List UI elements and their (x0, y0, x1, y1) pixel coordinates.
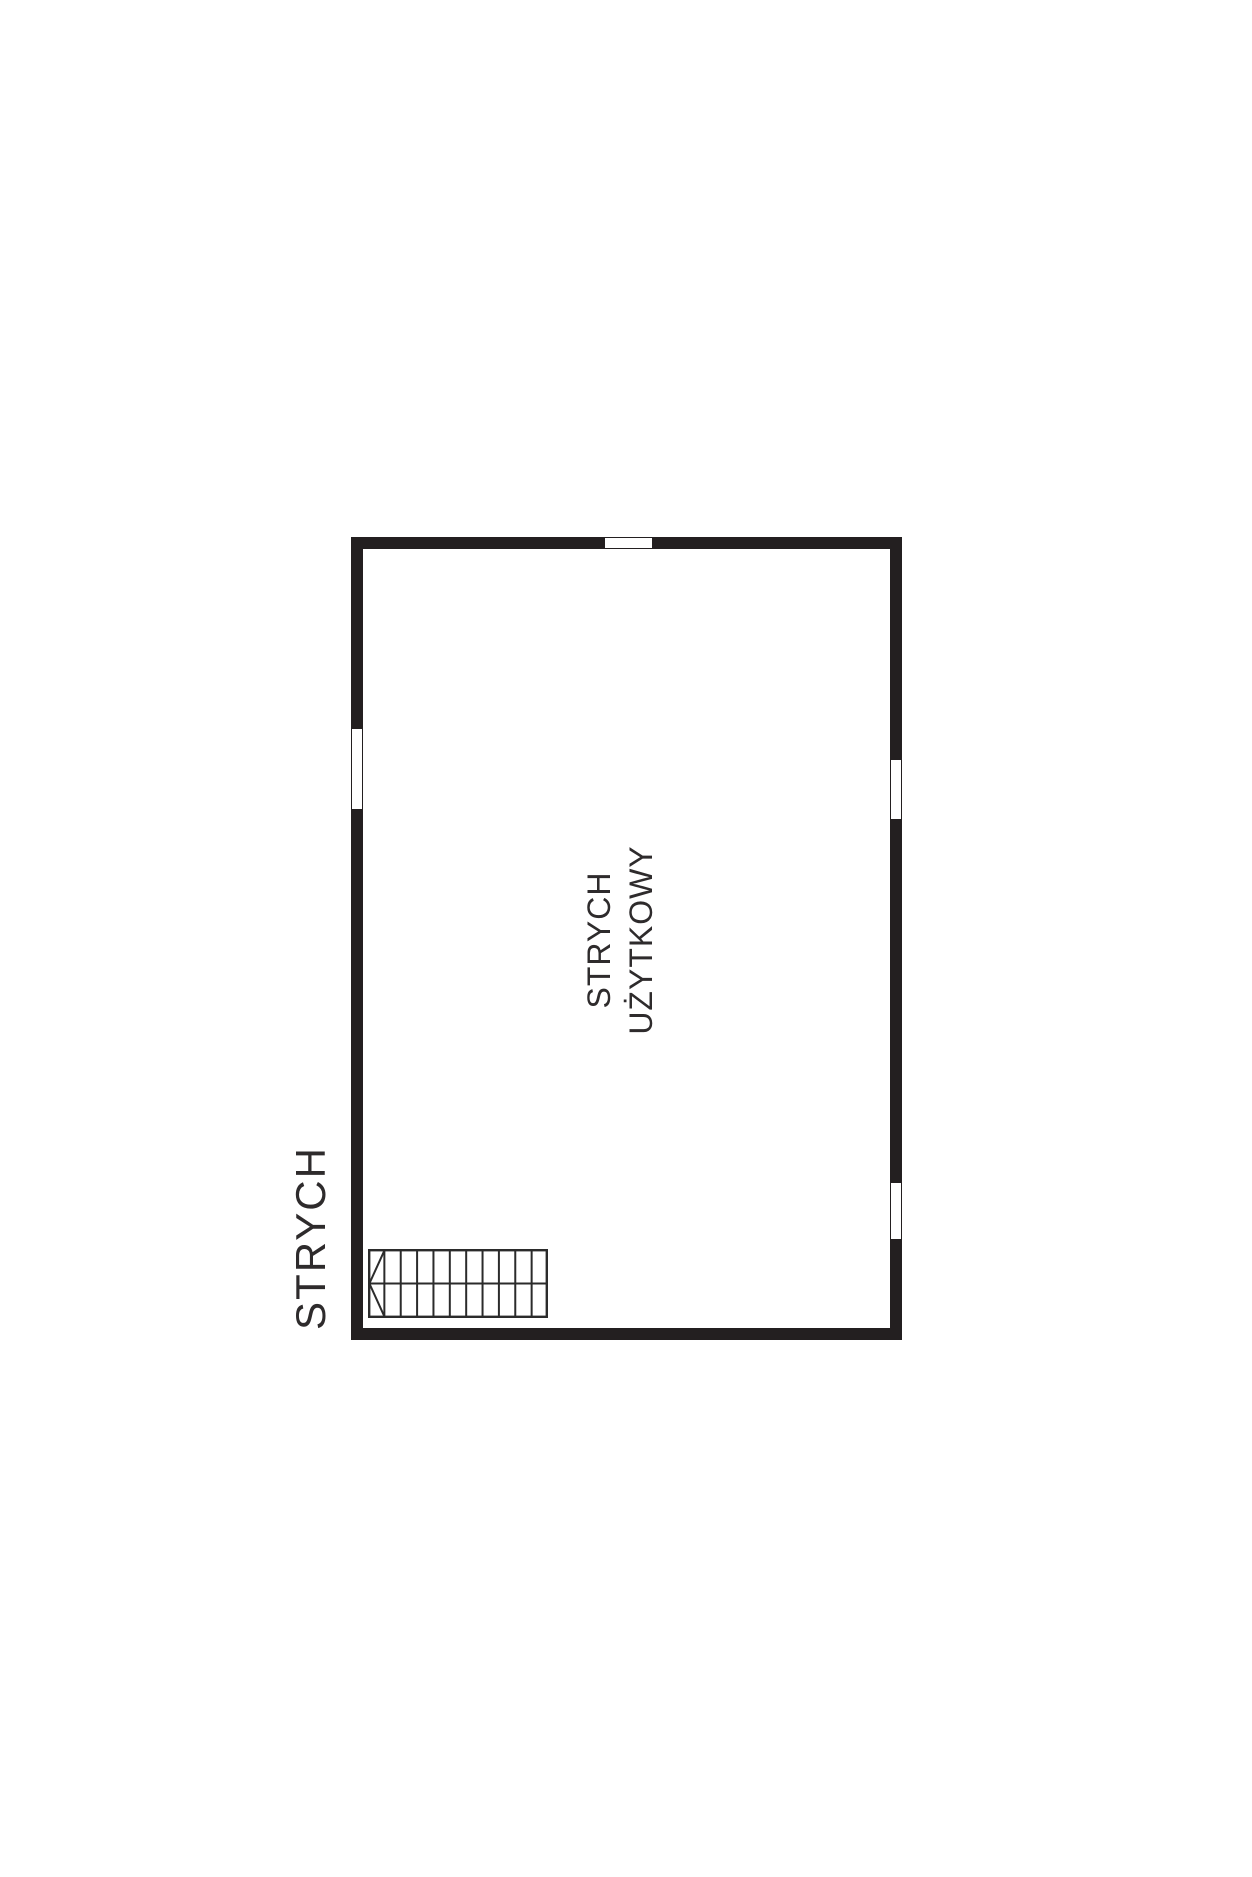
wall-bottom (351, 1328, 902, 1340)
room-label-line2: UŻYTKOWY (620, 780, 662, 1100)
window-left (351, 728, 363, 810)
floor-label: STRYCH (289, 1128, 333, 1348)
floorplan-page: STRYCH STRYCH UŻYTKOWY (0, 0, 1252, 1877)
staircase-drawing (368, 1249, 548, 1318)
window-right-lower (890, 1182, 902, 1240)
wall-left (351, 537, 363, 1340)
window-top (604, 537, 653, 549)
room-label-line1: STRYCH (578, 780, 620, 1100)
window-right-upper (890, 759, 902, 820)
room-label: STRYCH UŻYTKOWY (578, 780, 662, 1100)
